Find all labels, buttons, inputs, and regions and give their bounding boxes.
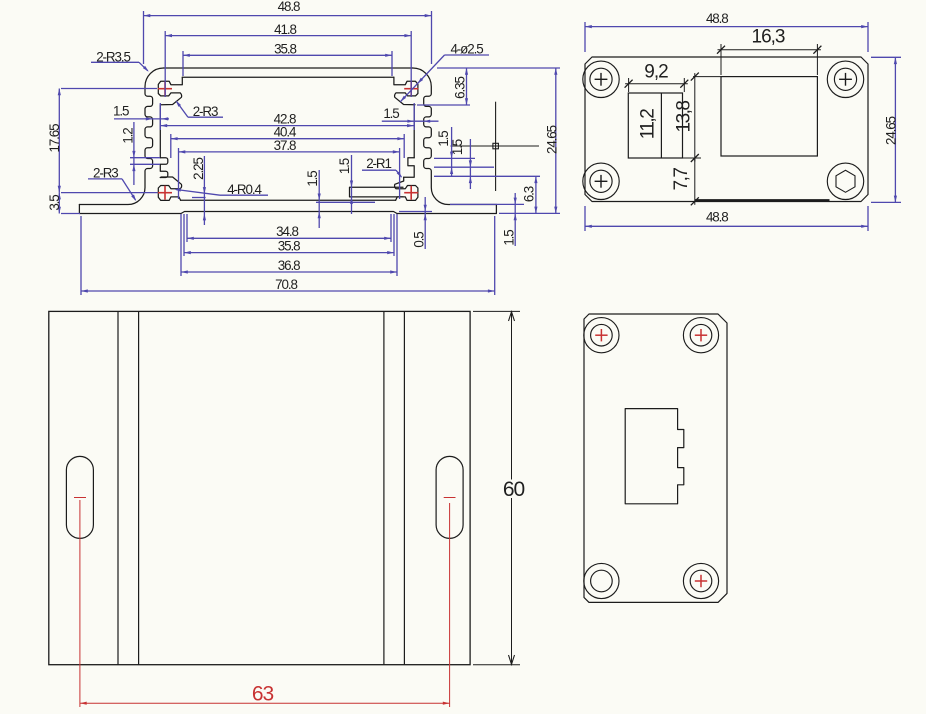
svg-text:36.8: 36.8 <box>278 258 300 273</box>
svg-text:41.8: 41.8 <box>274 22 296 37</box>
svg-text:24.65: 24.65 <box>884 116 899 145</box>
svg-text:63: 63 <box>252 683 274 706</box>
svg-text:6.3: 6.3 <box>522 186 537 202</box>
svg-text:13,8: 13,8 <box>674 101 695 133</box>
svg-text:70.8: 70.8 <box>275 277 297 292</box>
svg-text:17.65: 17.65 <box>47 124 62 153</box>
svg-text:48.8: 48.8 <box>706 11 728 26</box>
svg-text:37.8: 37.8 <box>274 138 296 153</box>
svg-text:35.8: 35.8 <box>278 239 300 254</box>
svg-text:3.5: 3.5 <box>47 195 62 211</box>
svg-text:0.5: 0.5 <box>412 232 427 248</box>
svg-text:1.5: 1.5 <box>383 106 399 121</box>
svg-text:1.5: 1.5 <box>113 104 129 119</box>
svg-text:1.5: 1.5 <box>450 139 465 155</box>
svg-text:9,2: 9,2 <box>644 62 668 83</box>
svg-text:7,7: 7,7 <box>671 168 692 191</box>
svg-text:48.8: 48.8 <box>278 0 300 14</box>
svg-text:1.2: 1.2 <box>120 128 135 144</box>
svg-text:4-ø2.5: 4-ø2.5 <box>450 42 483 57</box>
svg-text:1.5: 1.5 <box>502 230 517 246</box>
svg-text:35.8: 35.8 <box>274 41 296 56</box>
svg-text:6.35: 6.35 <box>453 77 468 99</box>
svg-text:60: 60 <box>503 478 525 501</box>
svg-text:1.5: 1.5 <box>436 131 451 147</box>
svg-text:48.8: 48.8 <box>706 209 728 224</box>
svg-text:2.25: 2.25 <box>191 158 206 180</box>
svg-text:1.5: 1.5 <box>337 158 352 174</box>
svg-text:2-R1: 2-R1 <box>366 156 391 171</box>
svg-text:24.65: 24.65 <box>545 125 560 154</box>
svg-text:1.5: 1.5 <box>305 171 320 187</box>
svg-text:34.8: 34.8 <box>276 224 298 239</box>
svg-text:16,3: 16,3 <box>752 27 785 48</box>
svg-text:11,2: 11,2 <box>638 109 659 140</box>
